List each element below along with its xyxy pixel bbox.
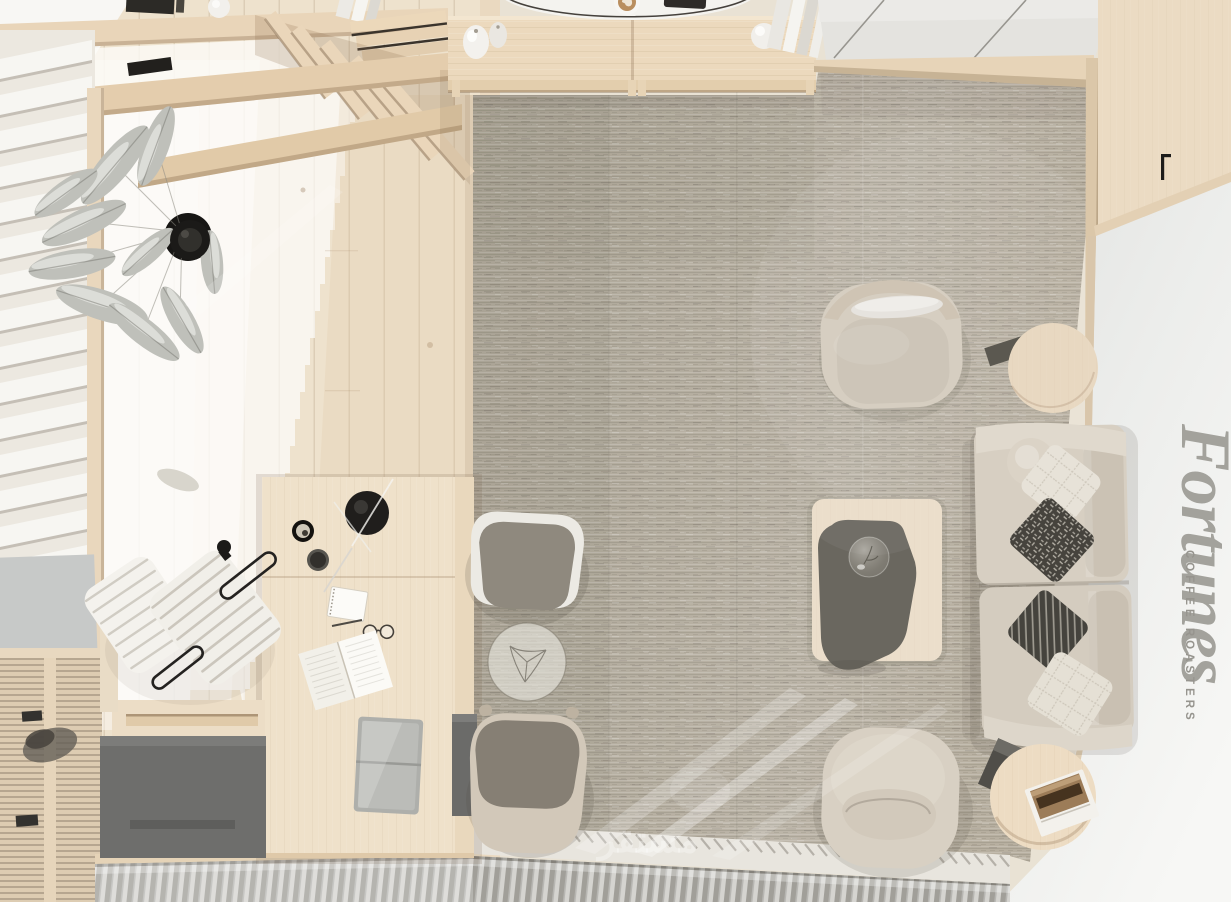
svg-text:COFFEE ROASTERS: COFFEE ROASTERS — [1183, 550, 1195, 724]
svg-text:Fortunes: Fortunes — [1166, 423, 1231, 684]
svg-text:مستقر: مستقر — [595, 819, 698, 862]
